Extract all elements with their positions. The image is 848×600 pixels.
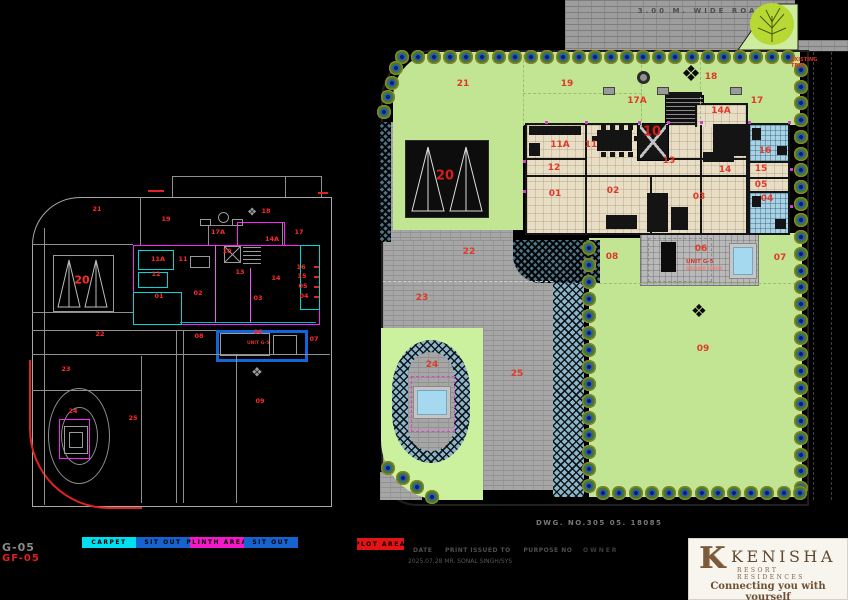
corner-tree-icon [728, 2, 800, 52]
tree-icon [380, 460, 396, 476]
tree-icon [793, 380, 809, 396]
cad-line [32, 244, 133, 245]
road-edge-line-2 [831, 52, 832, 500]
area-label-18: 18 [705, 72, 718, 82]
tree-icon [793, 146, 809, 162]
tree-icon [581, 410, 597, 426]
wall-accent-dot [585, 121, 588, 124]
area-label-10: 10 [222, 247, 231, 255]
cad-cyan-line [180, 322, 316, 323]
tree-icon [388, 60, 404, 76]
area-label-13: 13 [663, 156, 676, 166]
issue-line: 2025.07.28 MR. SONAL SINGH/SYS [408, 558, 512, 565]
area-label-02: 02 [193, 289, 202, 297]
tree-icon [710, 485, 726, 501]
tree-icon [581, 342, 597, 358]
cad-line [208, 225, 209, 245]
area-label-23: 23 [416, 293, 429, 303]
tree-icon [581, 359, 597, 375]
area-label-14: 14 [271, 274, 280, 282]
tree-icon [539, 49, 555, 65]
interior-wall [750, 161, 788, 163]
area-label-11A: 11A [151, 255, 165, 263]
tree-icon [732, 49, 748, 65]
cad-line [285, 176, 286, 197]
interior-wall [527, 175, 748, 177]
tree-icon [716, 49, 732, 65]
area-label-17A: 17A [211, 228, 225, 236]
tree-icon [793, 79, 809, 95]
area-label-06: 06 [253, 328, 262, 336]
bench-icon [730, 87, 742, 95]
area-label-20: 20 [436, 169, 454, 184]
chair-icon [610, 152, 615, 157]
furniture-block [775, 219, 786, 229]
cad-line [183, 330, 184, 503]
cad-line [141, 356, 142, 503]
area-label-21: 21 [92, 205, 101, 213]
zone-divider [589, 283, 801, 284]
tree-icon [581, 393, 597, 409]
sheet-number-red: GF-05 [2, 553, 40, 564]
cad-outline-box [69, 432, 83, 448]
interior-wall [527, 158, 585, 160]
interior-wall [750, 177, 788, 179]
cad-red-tick [148, 190, 164, 192]
legend-item-sit-out: SIT OUT [244, 537, 298, 548]
area-label-12: 12 [548, 163, 561, 173]
kenisha-monogram: K [699, 541, 729, 579]
cad-magenta-line [215, 245, 216, 323]
road-edge-line-1 [813, 52, 814, 500]
furniture-block [777, 146, 787, 155]
wall-accent-dot [788, 121, 791, 124]
field-date: DATE [413, 547, 432, 554]
cad-line [176, 330, 177, 503]
tree-icon [793, 179, 809, 195]
area-label-15: 15 [755, 164, 768, 174]
chair-icon [628, 152, 633, 157]
titleblock-fields: DATE PRINT ISSUED TO PURPOSE NO OWNER [413, 547, 618, 554]
tree-icon [793, 330, 809, 346]
interior-wall [638, 125, 640, 160]
tree-icon [395, 470, 411, 486]
furniture-block [752, 196, 761, 207]
logo-tagline: Connecting you with yourself [689, 581, 847, 600]
chair-icon [610, 125, 615, 130]
cad-line [236, 356, 237, 503]
paving-divider [383, 281, 553, 282]
area-label-16: 16 [296, 263, 305, 271]
tree-icon [776, 485, 792, 501]
unit-06-core [661, 242, 676, 272]
area-label-07: 07 [774, 253, 787, 263]
area-label-11: 11 [585, 140, 598, 150]
area-label-04: 04 [299, 292, 308, 300]
area-label-04: 04 [761, 194, 774, 204]
drawing-canvas: 3.00 M. WIDE ROAD [0, 0, 848, 600]
tree-icon [581, 376, 597, 392]
unit-06-label: UNIT G-5 [686, 259, 713, 265]
cad-line [44, 228, 45, 505]
tree-icon [507, 49, 523, 65]
chair-icon [601, 152, 606, 157]
tree-icon [661, 485, 677, 501]
area-label-24: 24 [68, 407, 77, 415]
interior-wall [638, 158, 748, 160]
garden-table-icon [637, 71, 650, 84]
tree-icon [581, 444, 597, 460]
tree-icon [700, 49, 716, 65]
area-label-19: 19 [561, 79, 574, 89]
tree-icon [793, 196, 809, 212]
area-label-17A: 17A [627, 96, 647, 106]
wall-accent-dot [638, 121, 641, 124]
legend-plot-area: PLOT AREA [357, 538, 404, 550]
tree-icon [628, 485, 644, 501]
area-label-22: 22 [463, 247, 476, 257]
area-label-11: 11 [178, 255, 187, 263]
kenisha-logo: K KENISHA RESORT RESIDENCES Connecting y… [688, 538, 848, 600]
interior-wall [700, 125, 702, 233]
area-label-20: 20 [74, 274, 89, 287]
tree-icon [581, 308, 597, 324]
cad-line [172, 176, 173, 197]
tree-icon [384, 75, 400, 91]
area-label-19: 19 [161, 215, 170, 223]
area-label-16: 16 [759, 146, 772, 156]
tree-icon [748, 49, 764, 65]
tree-icon [410, 49, 426, 65]
cad-magenta-line [250, 268, 251, 323]
area-label-18: 18 [261, 207, 270, 215]
tree-icon [581, 325, 597, 341]
wall-accent-dot [523, 190, 526, 193]
road-corner-black [795, 0, 848, 40]
area-label-06: 06 [695, 244, 708, 254]
tree-icon [793, 246, 809, 262]
cad-outline-box [273, 335, 297, 355]
tree-icon [581, 461, 597, 477]
cad-outline-box [190, 256, 210, 268]
tree-icon [793, 430, 809, 446]
area-label-25: 25 [128, 414, 137, 422]
bench-icon [657, 87, 669, 95]
wall-accent-dot [748, 121, 751, 124]
interior-wall [750, 191, 788, 193]
area-label-21: 21 [457, 79, 470, 89]
cad-ornament-09-icon: ❖ [251, 367, 263, 380]
area-label-24: 24 [426, 360, 439, 370]
area-label-25: 25 [511, 369, 524, 379]
area-label-08: 08 [194, 332, 203, 340]
cad-staircase [243, 245, 261, 267]
area-label-02: 02 [607, 186, 620, 196]
tree-icon [793, 363, 809, 379]
tree-icon [793, 296, 809, 312]
cad-red-tick [318, 192, 328, 194]
furniture-block [529, 126, 581, 135]
tree-icon [571, 49, 587, 65]
area-label-14: 14 [719, 165, 732, 175]
furniture-block [529, 143, 540, 156]
area-label-22: 22 [95, 330, 104, 338]
furniture-block [703, 152, 734, 162]
cad-line [32, 330, 216, 331]
tree-icon [376, 104, 392, 120]
wall-accent-dot [545, 121, 548, 124]
wall-accent-dot [700, 121, 703, 124]
cad-line [172, 176, 322, 177]
interior-wall [666, 125, 668, 160]
area-label-05: 05 [298, 282, 307, 290]
zone-divider [523, 93, 642, 94]
area-label-15: 15 [297, 272, 306, 280]
pool-24-water [417, 390, 447, 415]
tree-icon [491, 49, 507, 65]
cad-line [32, 312, 133, 313]
bench-icon [603, 87, 615, 95]
area-label-17: 17 [751, 96, 764, 106]
field-owner: OWNER [583, 547, 618, 554]
furniture-block [606, 215, 637, 229]
interior-wall [650, 177, 652, 233]
cad-outline-box [232, 219, 243, 226]
wall-accent-dot [523, 160, 526, 163]
logo-subtitle: RESORT RESIDENCES [737, 567, 847, 581]
tree-icon [743, 485, 759, 501]
chair-icon [619, 152, 624, 157]
legend: CARPETSIT OUTPLINTH AREASIT OUT [82, 537, 298, 548]
area-label-03: 03 [253, 294, 262, 302]
area-label-11A: 11A [550, 140, 570, 150]
furniture-block [665, 92, 702, 97]
pool-06-water [733, 247, 753, 275]
legend-item-sit-out: SIT OUT [136, 537, 190, 548]
cad-outline-box [220, 333, 270, 356]
field-purpose-no: PURPOSE NO [523, 547, 572, 554]
unit-06-sublabel: GROUND FLOOR [686, 266, 722, 271]
tree-icon [555, 49, 571, 65]
tree-icon [595, 485, 611, 501]
cad-ornament-18-icon: ❖ [247, 207, 257, 218]
cad-red-tick [314, 296, 319, 298]
tree-icon [793, 129, 809, 145]
tree-icon [581, 291, 597, 307]
sitout-left-strip [380, 122, 391, 242]
area-label-07: 07 [309, 335, 318, 343]
furniture-block [597, 130, 632, 151]
tree-icon [424, 489, 440, 505]
dwg-number: DWG. NO.305 05. 18085 [536, 519, 662, 527]
area-label-17: 17 [294, 228, 303, 236]
legend-plot-area-label: PLOT AREA [355, 541, 406, 548]
cad-line [282, 222, 283, 245]
cad-garden-table-icon [218, 212, 229, 223]
area-label-09: 09 [255, 397, 264, 405]
tree-icon [523, 49, 539, 65]
tree-icon [694, 485, 710, 501]
area-label-10: 10 [643, 125, 661, 140]
tree-icon [587, 49, 603, 65]
tree-icon [792, 485, 808, 501]
tree-icon [581, 257, 597, 273]
cad-outline-box [200, 219, 211, 226]
legend-item-carpet: CARPET [82, 537, 136, 548]
area-label-09: 09 [697, 344, 710, 354]
tree-icon [581, 240, 597, 256]
furniture-block [752, 128, 761, 140]
tree-icon [793, 447, 809, 463]
cad-red-tick [314, 276, 319, 278]
lawn-ornament-18-icon: ❖ [681, 64, 701, 86]
area-label-14A: 14A [265, 235, 279, 243]
area-label-23: 23 [61, 365, 70, 373]
tree-icon [677, 485, 693, 501]
area-label-01: 01 [549, 189, 562, 199]
area-label-14A: 14A [711, 106, 731, 116]
chair-icon [628, 125, 633, 130]
chair-icon [619, 125, 624, 130]
sitout-right-strip [553, 283, 584, 497]
cad-red-tick [314, 266, 319, 268]
lawn-ornament-09-icon: ❖ [691, 303, 707, 321]
area-label-03: 03 [693, 192, 706, 202]
tree-icon [764, 49, 780, 65]
tree-icon [793, 413, 809, 429]
area-label-08: 08 [606, 252, 619, 262]
legend-item-plinth-area: PLINTH AREA [190, 537, 244, 548]
cad-line [140, 197, 141, 245]
tree-icon [793, 313, 809, 329]
area-label-13: 13 [235, 268, 244, 276]
area-label-01: 01 [154, 292, 163, 300]
chair-icon [601, 125, 606, 130]
cad-line [32, 390, 141, 391]
tree-icon [581, 274, 597, 290]
tree-icon [581, 427, 597, 443]
zone-divider [641, 55, 642, 126]
furniture-block [671, 207, 688, 230]
zone-divider [523, 55, 524, 126]
field-print-issued-to: PRINT ISSUED TO [445, 547, 511, 554]
tree-icon [793, 263, 809, 279]
wall-accent-dot [667, 121, 670, 124]
area-label-05: 05 [755, 180, 768, 190]
logo-name: KENISHA [731, 547, 836, 566]
cad-red-tick [314, 286, 319, 288]
tree-icon [603, 49, 619, 65]
area-label-12: 12 [151, 270, 160, 278]
